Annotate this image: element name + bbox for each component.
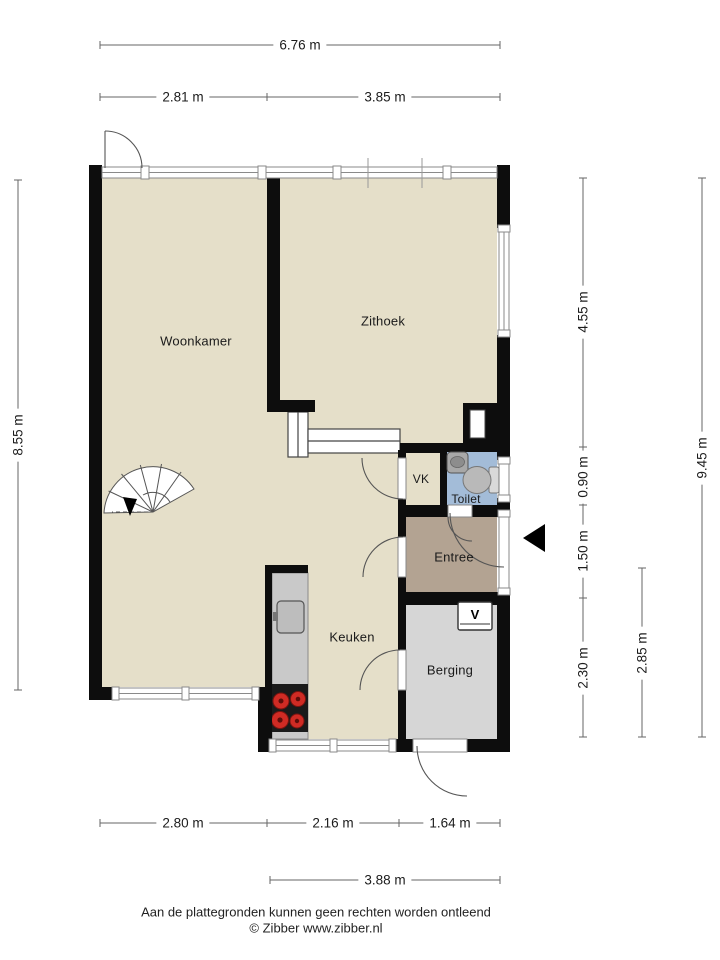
room-label-woonkamer: Woonkamer xyxy=(160,334,232,349)
kitchen-counter xyxy=(267,573,308,739)
room-label-toilet: Toilet xyxy=(451,492,480,506)
room-label-zithoek: Zithoek xyxy=(361,314,405,329)
door-opening-vk xyxy=(398,458,406,499)
dim-bottom-total: 3.88 m xyxy=(358,873,411,888)
door-arc-topleft xyxy=(105,131,142,168)
dim-top-left: 2.81 m xyxy=(156,90,209,105)
boiler: V xyxy=(458,602,492,630)
dim-bottom-seg2: 2.16 m xyxy=(306,816,359,831)
dim-right-seg1: 4.55 m xyxy=(576,285,591,338)
door-opening-toilet xyxy=(448,505,472,517)
footer-copyright: © Zibber www.zibber.nl xyxy=(249,921,382,936)
door-arc-berging-exterior xyxy=(417,746,467,796)
window-toilet xyxy=(499,460,509,498)
dim-top-total: 6.76 m xyxy=(273,38,326,53)
toilet-bowl xyxy=(463,467,491,494)
dim-left-total: 8.55 m xyxy=(11,408,26,461)
footer-disclaimer: Aan de plattegronden kunnen geen rechten… xyxy=(141,905,491,920)
boiler-symbol: V xyxy=(471,607,480,622)
dim-right-seg2: 0.90 m xyxy=(576,450,591,503)
door-opening-keuken-berging xyxy=(398,650,406,690)
door-opening-berging-exterior xyxy=(413,739,467,752)
dim-bottom-seg3: 1.64 m xyxy=(423,816,476,831)
entrance-arrow-icon xyxy=(523,524,545,552)
chimney-flue xyxy=(470,410,485,438)
room-label-keuken: Keuken xyxy=(329,630,374,645)
room-label-berging: Berging xyxy=(427,663,473,678)
dim-right-mid: 2.85 m xyxy=(635,626,650,679)
floorplan-drawing: V xyxy=(0,0,720,960)
room-label-vk: VK xyxy=(413,472,429,486)
room-label-entree: Entree xyxy=(434,550,474,565)
cooktop xyxy=(267,684,308,732)
kitchen-sink xyxy=(277,601,304,633)
floorplan-page: V xyxy=(0,0,720,960)
front-door-leaf xyxy=(499,513,509,593)
dim-right-seg3: 1.50 m xyxy=(576,524,591,577)
dim-top-right: 3.85 m xyxy=(358,90,411,105)
dim-right-total: 9.45 m xyxy=(695,431,710,484)
door-opening-entree-keuken xyxy=(398,537,406,577)
dim-bottom-seg1: 2.80 m xyxy=(156,816,209,831)
sink-tap-icon xyxy=(273,612,278,621)
dim-right-seg4: 2.30 m xyxy=(576,641,591,694)
